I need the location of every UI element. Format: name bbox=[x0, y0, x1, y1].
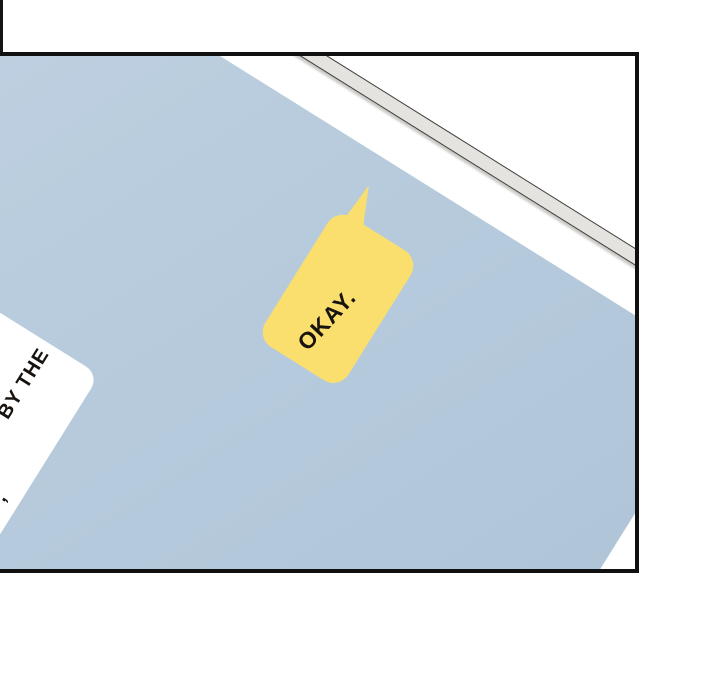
comic-panel: OKAY. BY THE , bbox=[0, 52, 639, 573]
previous-panel-border bbox=[0, 0, 3, 54]
comic-page: OKAY. BY THE , bbox=[0, 0, 720, 700]
